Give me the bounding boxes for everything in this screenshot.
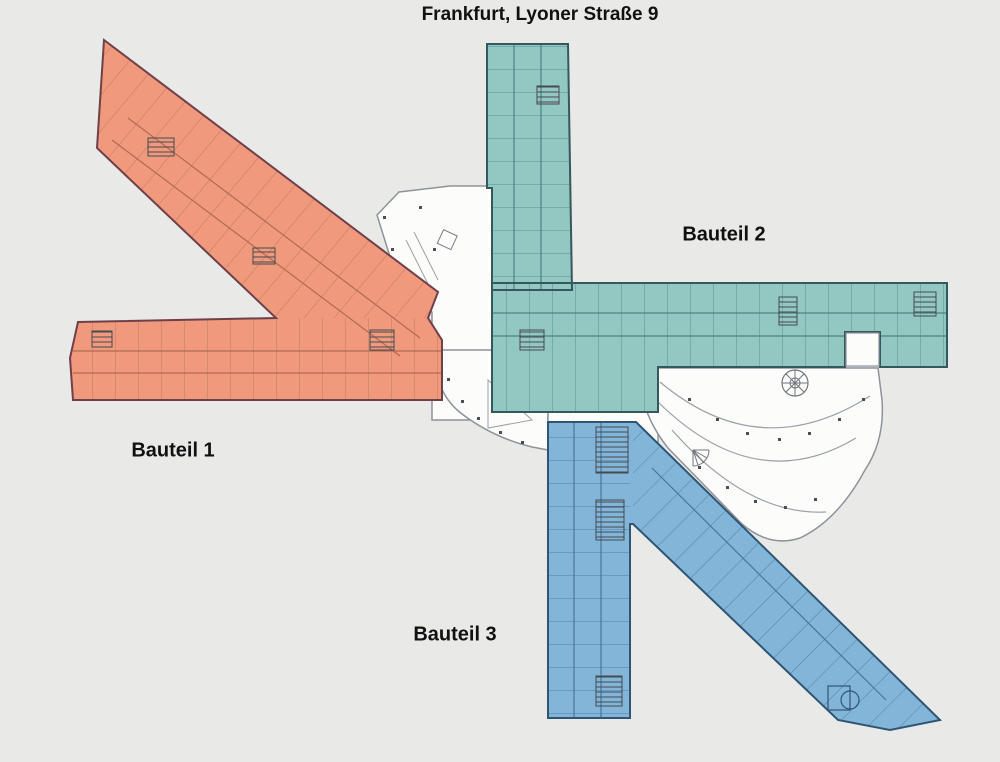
band-notch-area: [846, 333, 879, 366]
stair-icon: [596, 676, 622, 706]
stair-icon: [779, 297, 797, 325]
stair-icon: [370, 330, 394, 350]
floor-plan-stage: Frankfurt, Lyoner Straße 9 Bauteil 1 Bau…: [0, 0, 1000, 762]
label-bauteil-1: Bauteil 1: [131, 440, 214, 463]
page-title: Frankfurt, Lyoner Straße 9: [422, 4, 659, 26]
stair-icon: [520, 330, 544, 350]
stair-icon: [92, 331, 112, 347]
stair-icon: [596, 500, 624, 540]
floor-plan-svg: [0, 0, 1000, 762]
stair-icon: [596, 427, 628, 473]
stair-icon: [148, 138, 174, 156]
label-bauteil-2: Bauteil 2: [682, 224, 765, 247]
stair-icon: [537, 86, 559, 104]
stair-icon: [914, 292, 936, 316]
rotunda-icon: [782, 370, 808, 396]
stair-icon: [253, 248, 275, 264]
label-bauteil-3: Bauteil 3: [413, 624, 496, 647]
